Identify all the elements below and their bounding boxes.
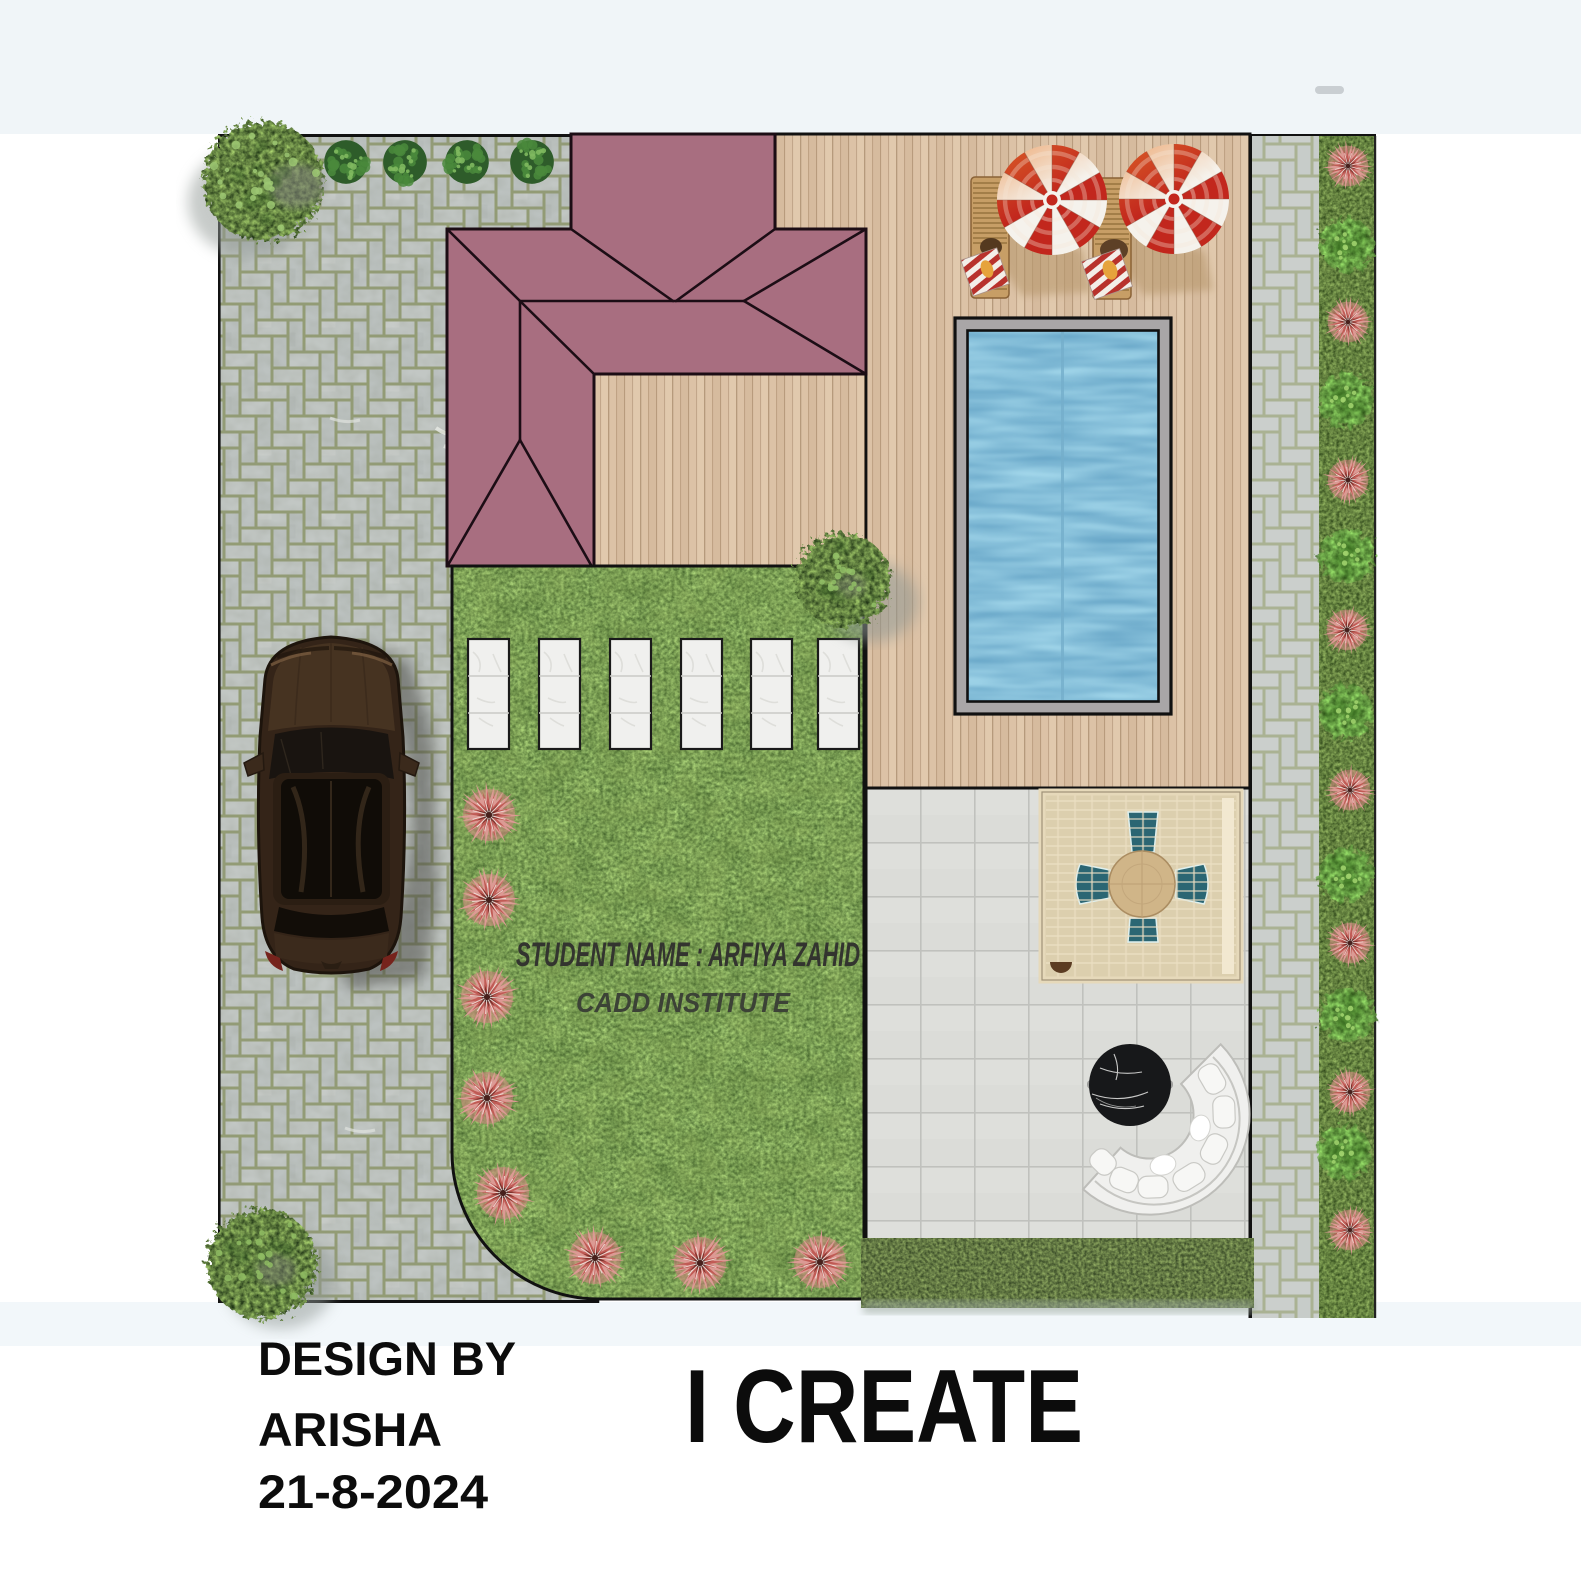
svg-text:DESIGN BY: DESIGN BY bbox=[258, 1332, 516, 1385]
svg-text:STUDENT NAME : ARFIYA ZAHID: STUDENT NAME : ARFIYA ZAHID bbox=[516, 936, 860, 974]
svg-text:ARISHA: ARISHA bbox=[258, 1403, 442, 1456]
svg-text:I CREATE: I CREATE bbox=[685, 1349, 1083, 1465]
svg-text:CADD INSTITUTE: CADD INSTITUTE bbox=[576, 987, 791, 1018]
svg-text:21-8-2024: 21-8-2024 bbox=[258, 1465, 488, 1518]
